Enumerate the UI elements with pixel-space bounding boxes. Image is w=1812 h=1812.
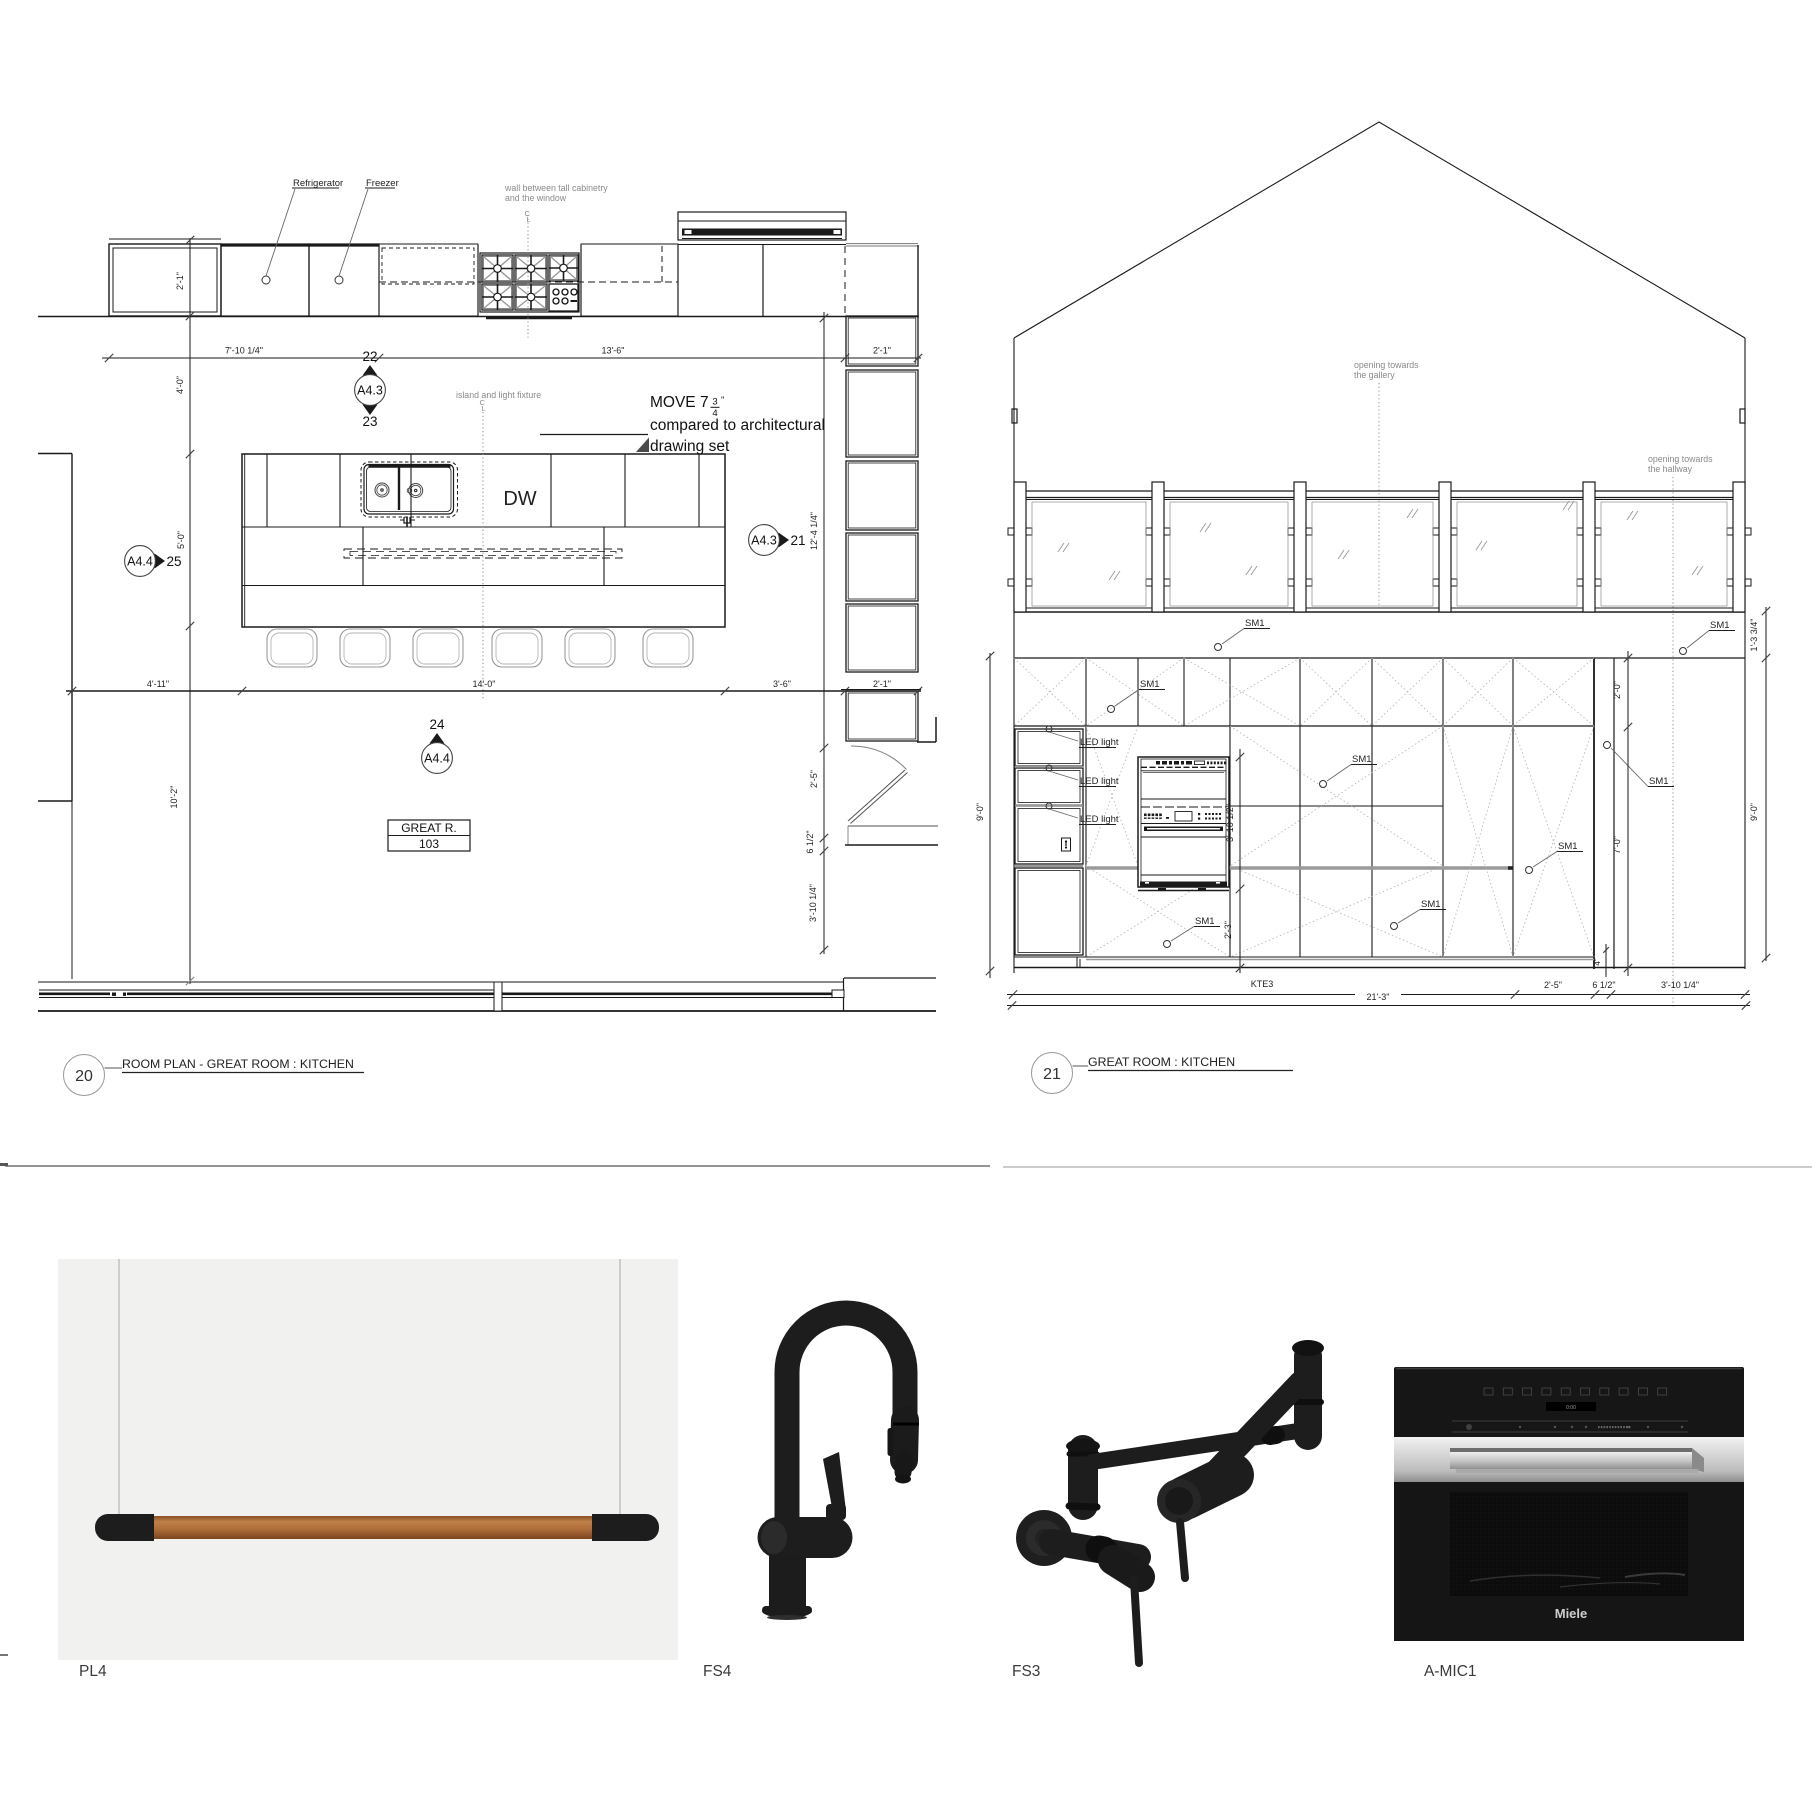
svg-text:3'-10 1/4": 3'-10 1/4"	[1661, 980, 1699, 990]
svg-text:A4.3: A4.3	[357, 384, 383, 398]
svg-text:L: L	[482, 404, 486, 413]
svg-text:and the window: and the window	[505, 193, 567, 203]
svg-text:7'-0": 7'-0"	[1612, 836, 1622, 854]
svg-text:SM1: SM1	[1352, 754, 1372, 765]
svg-text:SM1: SM1	[1140, 679, 1160, 690]
svg-text:3'-10 1/2": 3'-10 1/2"	[1225, 804, 1235, 842]
svg-text:21'-3": 21'-3"	[1367, 992, 1390, 1002]
svg-text:22: 22	[362, 349, 377, 364]
svg-text:": "	[721, 395, 724, 406]
svg-text:FS3: FS3	[1012, 1663, 1040, 1680]
svg-text:opening towards: opening towards	[1648, 454, 1713, 464]
svg-text:0:00: 0:00	[1566, 1405, 1576, 1411]
svg-text:SM1: SM1	[1245, 618, 1265, 629]
svg-text:6 1/2": 6 1/2"	[1592, 980, 1615, 990]
svg-text:20: 20	[75, 1068, 93, 1085]
svg-text:L: L	[527, 215, 531, 224]
svg-text:A4.4: A4.4	[127, 555, 153, 569]
svg-text:compared to architectural: compared to architectural	[650, 417, 825, 434]
svg-text:2'-5": 2'-5"	[809, 770, 819, 788]
svg-text:SM1: SM1	[1558, 841, 1578, 852]
svg-text:MOVE 7: MOVE 7	[650, 394, 709, 411]
svg-text:13'-6": 13'-6"	[602, 346, 625, 356]
svg-text:LED light: LED light	[1080, 814, 1119, 825]
svg-text:2'-1": 2'-1"	[175, 272, 185, 290]
svg-text:2'-0": 2'-0"	[1612, 681, 1622, 699]
svg-text:3'-6": 3'-6"	[773, 679, 791, 689]
svg-text:the gallery: the gallery	[1354, 370, 1395, 380]
svg-text:ROOM PLAN - GREAT ROOM : KITCH: ROOM PLAN - GREAT ROOM : KITCHEN	[122, 1057, 354, 1071]
svg-text:Miele: Miele	[1555, 1606, 1588, 1621]
svg-text:2'-1": 2'-1"	[873, 679, 891, 689]
svg-text:24: 24	[429, 717, 445, 732]
svg-text:3'-10 1/4": 3'-10 1/4"	[808, 884, 818, 922]
svg-text:9'-0": 9'-0"	[975, 803, 985, 821]
svg-text:3: 3	[712, 397, 717, 408]
svg-text:SM1: SM1	[1195, 916, 1215, 927]
svg-text:KTE3: KTE3	[1251, 979, 1274, 989]
svg-text:21: 21	[790, 533, 805, 548]
svg-text:21: 21	[1043, 1066, 1061, 1083]
svg-text:LED light: LED light	[1080, 737, 1119, 748]
svg-text:Freezer: Freezer	[366, 178, 399, 189]
svg-text:PL4: PL4	[79, 1663, 107, 1680]
svg-text:5'-0": 5'-0"	[176, 531, 186, 549]
svg-text:opening towards: opening towards	[1354, 360, 1419, 370]
svg-text:SM1: SM1	[1421, 899, 1441, 910]
svg-text:10'-2": 10'-2"	[169, 786, 179, 809]
svg-text:6 1/2": 6 1/2"	[805, 830, 815, 853]
svg-text:23: 23	[362, 414, 377, 429]
svg-text:A4.3: A4.3	[751, 534, 777, 548]
svg-text:7'-10 1/4": 7'-10 1/4"	[225, 346, 263, 356]
svg-text:1'-3 3/4": 1'-3 3/4"	[1749, 619, 1759, 652]
svg-text:SM1: SM1	[1710, 620, 1730, 631]
svg-text:wall between tall cabinetry: wall between tall cabinetry	[504, 183, 608, 193]
svg-text:4'-11": 4'-11"	[147, 679, 169, 689]
svg-text:2'-5": 2'-5"	[1544, 980, 1562, 990]
svg-text:4": 4"	[1593, 958, 1602, 965]
svg-text:103: 103	[419, 837, 439, 851]
svg-text:25: 25	[166, 554, 181, 569]
svg-text:A-MIC1: A-MIC1	[1424, 1663, 1477, 1680]
svg-text:island and light fixture: island and light fixture	[456, 390, 541, 400]
svg-text:9'-0": 9'-0"	[1749, 803, 1759, 821]
svg-text:14'-0": 14'-0"	[473, 679, 496, 689]
svg-text:A4.4: A4.4	[424, 752, 450, 766]
svg-text:SM1: SM1	[1649, 776, 1669, 787]
svg-text:GREAT R.: GREAT R.	[401, 821, 457, 835]
svg-text:GREAT ROOM : KITCHEN: GREAT ROOM : KITCHEN	[1088, 1055, 1235, 1069]
svg-text:2'-3": 2'-3"	[1223, 921, 1233, 939]
svg-text:2'-1": 2'-1"	[873, 346, 891, 356]
svg-text:DW: DW	[503, 488, 536, 510]
svg-text:drawing set: drawing set	[650, 438, 730, 455]
svg-text:4'-0": 4'-0"	[175, 376, 185, 394]
svg-text:the hallway: the hallway	[1648, 464, 1693, 474]
svg-text:Refrigerator: Refrigerator	[293, 178, 343, 189]
svg-text:LED light: LED light	[1080, 776, 1119, 787]
svg-text:FS4: FS4	[703, 1663, 732, 1680]
svg-text:12'-4 1/4": 12'-4 1/4"	[809, 512, 819, 550]
